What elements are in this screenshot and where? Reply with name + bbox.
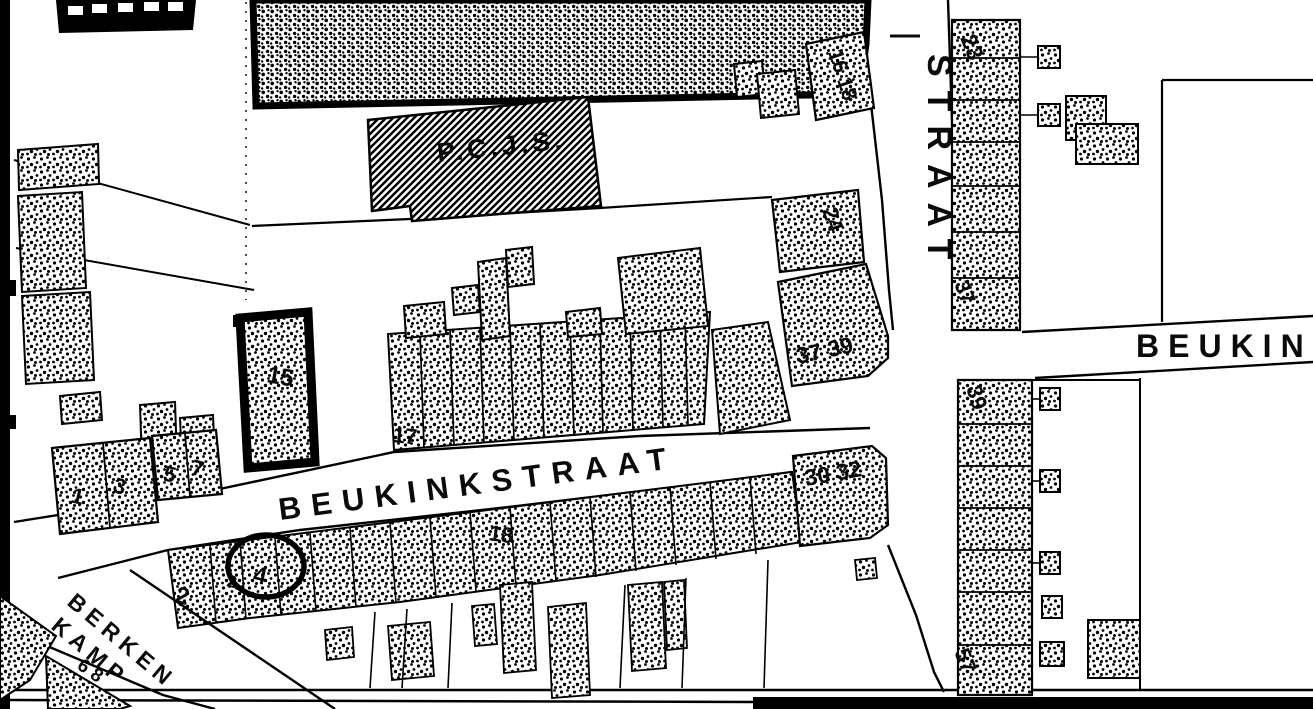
house-number-15: 15 xyxy=(265,361,296,392)
street-name-dash: — xyxy=(890,18,920,51)
right-housing-column-south: 39 57 xyxy=(949,380,1140,695)
north-south-street: — STRAAT xyxy=(890,18,958,273)
beukink-street-east: BEUKINK xyxy=(1136,328,1313,364)
pcjs-building: P.C.J.S. xyxy=(368,97,601,221)
east-street-west-buildings: 16 18 24 37 39 30 32 xyxy=(734,32,888,546)
right-housing-column-north: 23 37 xyxy=(949,20,1138,330)
left-column-buildings: 1 3 5 7 xyxy=(18,144,222,534)
house-number-17: 17 xyxy=(391,422,418,449)
street-label-beukink-partial: BEUKINK xyxy=(1136,328,1313,364)
bold-building-15: 15 xyxy=(233,312,315,468)
middle-terraced-row: 17 xyxy=(388,247,790,450)
top-left-black-building xyxy=(56,0,196,33)
house-number-18: 18 xyxy=(487,520,515,548)
south-terraced-row: 2 2 4 18 xyxy=(168,472,877,698)
cadastral-map: P.C.J.S. 1 3 5 7 15 xyxy=(0,0,1313,709)
